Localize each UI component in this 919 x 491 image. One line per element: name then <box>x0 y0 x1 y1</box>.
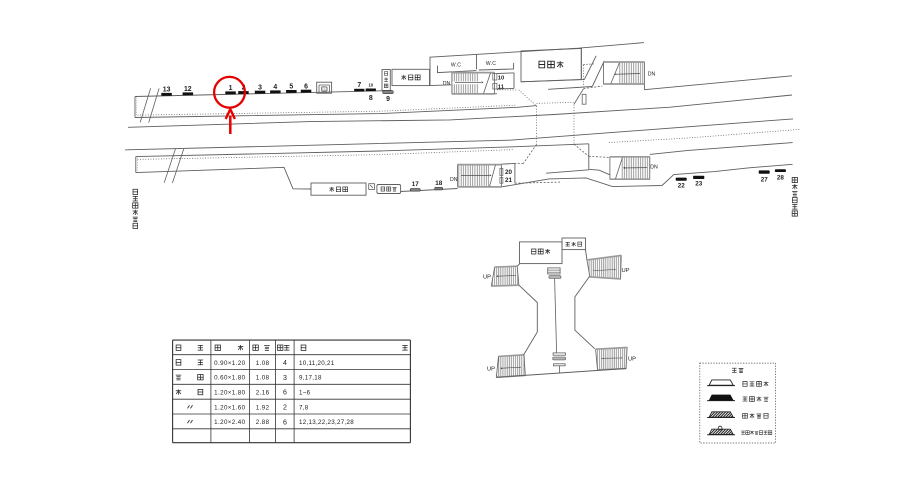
svg-text:10,11,20,21: 10,11,20,21 <box>299 360 335 367</box>
svg-text:1.20×1.60: 1.20×1.60 <box>214 404 245 411</box>
svg-text:6: 6 <box>283 419 287 426</box>
svg-text:17: 17 <box>412 181 420 188</box>
svg-text:10: 10 <box>498 76 504 82</box>
svg-text:18: 18 <box>435 180 443 187</box>
svg-text:DN: DN <box>450 177 458 183</box>
svg-text:20: 20 <box>505 169 513 176</box>
svg-text:0.90×1.20: 0.90×1.20 <box>214 360 245 367</box>
svg-text:W.C: W.C <box>451 62 461 68</box>
svg-text:5: 5 <box>289 84 293 91</box>
svg-text:1: 1 <box>229 85 233 92</box>
svg-text:9: 9 <box>386 96 390 103</box>
svg-text:7,8: 7,8 <box>299 404 309 411</box>
svg-text:1.92: 1.92 <box>256 404 270 411</box>
svg-text:21: 21 <box>505 177 513 184</box>
svg-text:28: 28 <box>777 175 785 182</box>
svg-text:1.20×2.40: 1.20×2.40 <box>214 419 245 426</box>
svg-text:22: 22 <box>678 182 686 189</box>
svg-text:2: 2 <box>283 405 287 412</box>
svg-text:2.16: 2.16 <box>256 389 270 396</box>
svg-text:1.08: 1.08 <box>256 375 270 382</box>
svg-text:W.C: W.C <box>486 61 496 67</box>
svg-text:1~6: 1~6 <box>299 389 311 396</box>
svg-text:23: 23 <box>695 180 703 187</box>
svg-text:13: 13 <box>163 87 171 94</box>
svg-text:1.08: 1.08 <box>256 360 270 367</box>
svg-text:4: 4 <box>273 84 277 91</box>
svg-text:4: 4 <box>283 360 287 367</box>
svg-text:6: 6 <box>304 83 308 90</box>
svg-text:12,13,22,23,27,28: 12,13,22,23,27,28 <box>299 419 354 426</box>
svg-text:UP: UP <box>483 275 491 281</box>
svg-text:UP: UP <box>487 367 495 373</box>
svg-text:8: 8 <box>369 95 373 102</box>
svg-text:3: 3 <box>283 375 287 382</box>
svg-text:11: 11 <box>498 85 505 91</box>
svg-text:3: 3 <box>258 84 262 91</box>
svg-text:DN: DN <box>650 164 658 170</box>
svg-text:2.88: 2.88 <box>256 419 270 426</box>
svg-text:UP: UP <box>621 268 629 274</box>
svg-text:12: 12 <box>184 86 192 93</box>
svg-text:27: 27 <box>761 176 769 183</box>
svg-text:UP: UP <box>628 357 636 363</box>
svg-text:6: 6 <box>283 390 287 397</box>
svg-text:DN: DN <box>648 72 656 78</box>
svg-text:1.20×1.80: 1.20×1.80 <box>214 389 245 396</box>
svg-text:7: 7 <box>357 82 361 89</box>
svg-text:10: 10 <box>368 82 373 87</box>
svg-text:0.60×1.80: 0.60×1.80 <box>214 375 245 382</box>
svg-text:9,17,18: 9,17,18 <box>299 375 322 382</box>
svg-text:DN: DN <box>443 81 451 87</box>
